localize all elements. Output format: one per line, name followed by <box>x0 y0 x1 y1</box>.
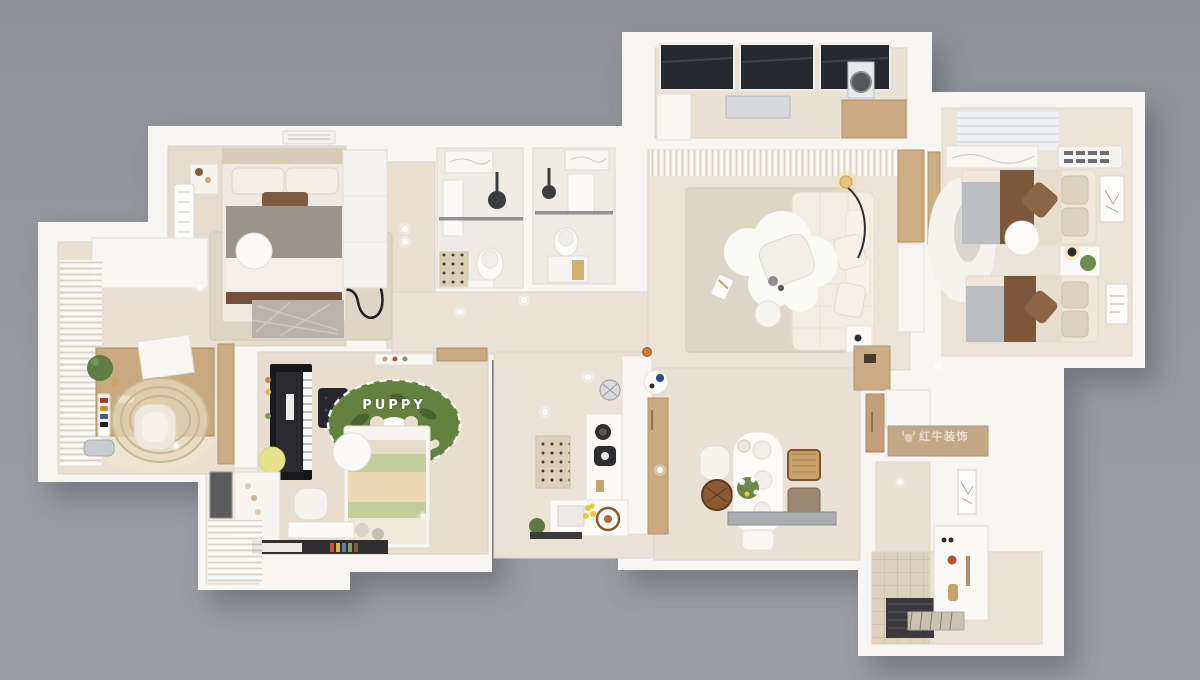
wall-art-frame <box>1100 176 1124 222</box>
brown-chair <box>788 488 820 514</box>
wood-door <box>866 394 884 452</box>
cabinet-decor <box>948 556 957 565</box>
balcony-cabinet <box>657 94 691 140</box>
laundry-wood-counter <box>842 100 906 138</box>
bowl <box>738 440 750 452</box>
pillow <box>286 168 338 194</box>
cabinet-bottle <box>948 584 958 601</box>
dotted-bath-mat <box>440 252 468 286</box>
pillow <box>1062 311 1088 337</box>
recessed-light <box>195 283 205 293</box>
dining-chair-white <box>700 446 730 480</box>
ac-grille <box>283 131 335 144</box>
recessed-light <box>171 441 181 451</box>
floor-entry-corridor <box>876 462 930 564</box>
book <box>100 422 108 427</box>
glass-roof-panel <box>660 44 734 90</box>
gold-bath-mat <box>572 260 584 280</box>
media-wood-cabinet <box>898 150 924 242</box>
dark-counter-strip <box>530 532 582 539</box>
lemon <box>583 513 589 519</box>
yellow-stool <box>259 447 285 473</box>
hook-decor <box>255 509 261 515</box>
recessed-light <box>933 361 943 371</box>
round-side-table <box>236 233 272 269</box>
pillow <box>1062 208 1088 236</box>
sofa-pillow <box>833 282 866 318</box>
desk-plant <box>87 355 113 381</box>
master-headboard <box>222 148 346 164</box>
recessed-light <box>654 464 666 476</box>
table-pedestal <box>742 530 774 550</box>
table-flowers <box>737 477 759 499</box>
study <box>60 238 234 466</box>
floorplan-render: PUPPY 红牛装饰 <box>0 0 1200 680</box>
table-decor <box>768 276 778 286</box>
kitchen-jar <box>596 480 604 492</box>
sink <box>558 506 584 526</box>
shower-glass-screen <box>535 211 613 215</box>
pillow <box>232 168 284 194</box>
plate <box>753 441 771 459</box>
kids-round-table <box>333 433 371 471</box>
wood-side-shelf <box>218 344 234 464</box>
twin-bed-2 <box>966 276 1098 342</box>
sheer-curtains <box>650 150 906 176</box>
gray-blanket <box>962 182 1004 244</box>
accent-pillow <box>262 192 308 208</box>
desk-bowl <box>110 378 118 386</box>
vanity <box>443 180 463 236</box>
recessed-light <box>582 371 594 383</box>
washing-machine-door <box>851 72 871 92</box>
hook-decor <box>245 483 251 489</box>
closet-wardrobe <box>343 150 387 288</box>
recessed-light <box>895 477 905 487</box>
metal-bin <box>84 440 114 456</box>
watermark-cabinet <box>888 426 988 456</box>
floorplan-svg <box>0 0 1200 680</box>
glass-roof-panel <box>740 44 814 90</box>
plant <box>1080 255 1096 271</box>
book <box>348 543 352 552</box>
pillow <box>1062 176 1088 204</box>
sheet-music <box>286 394 294 420</box>
table-lamp <box>1068 248 1077 257</box>
recessed-light <box>518 294 530 306</box>
hook-decor <box>251 495 257 501</box>
sheer-curtains <box>208 520 262 582</box>
piano-keys <box>303 372 312 470</box>
plush-toy <box>355 523 369 537</box>
shower-glass-screen <box>439 217 523 221</box>
recessed-light <box>418 511 428 521</box>
showerhead <box>542 185 556 199</box>
white-cabinet <box>886 390 930 428</box>
bath-door <box>468 280 494 288</box>
shower-marble-panel <box>565 150 609 170</box>
kids-desk <box>288 522 354 538</box>
lemon <box>590 504 595 509</box>
book <box>100 406 108 411</box>
stone-bench <box>728 512 836 525</box>
book <box>354 543 358 552</box>
cabinet-handle <box>966 556 970 586</box>
potted-plant <box>529 518 545 534</box>
recessed-light <box>454 306 466 318</box>
hall-round-table <box>644 370 668 394</box>
dark-glass-panel <box>210 472 232 518</box>
round-stool <box>755 301 781 327</box>
pillow <box>1062 282 1088 308</box>
recessed-light <box>399 236 411 248</box>
kids-desk-chair <box>294 488 328 520</box>
recessed-light <box>539 406 551 418</box>
recessed-light <box>399 223 411 235</box>
kids-room-door <box>437 348 487 361</box>
book <box>330 543 334 552</box>
media-white-cabinet <box>898 244 924 332</box>
round-stool <box>1005 221 1039 255</box>
book <box>336 543 340 552</box>
ac-grille <box>1058 146 1122 168</box>
book <box>342 543 346 552</box>
wood-upper-cabinet <box>854 346 890 390</box>
book <box>100 398 108 403</box>
desk-white-box <box>138 335 195 380</box>
plush-toy <box>372 528 384 540</box>
arc-floor-lamp-head <box>840 176 852 188</box>
gray-blanket <box>966 286 1006 342</box>
striped-door-mat <box>908 612 964 630</box>
drying-rack <box>726 96 790 118</box>
lemon <box>590 511 596 517</box>
shower-marble-panel <box>445 151 493 173</box>
books-white <box>262 543 302 552</box>
marble-sill <box>946 146 1038 168</box>
showerhead <box>488 191 506 209</box>
book <box>100 414 108 419</box>
table-lamp <box>855 335 862 342</box>
pendant-decor <box>643 348 652 357</box>
nightstand-decor <box>195 168 203 176</box>
kitchen-dotted-rug <box>536 436 570 488</box>
vanity <box>568 174 594 214</box>
study-cabinet <box>92 238 208 288</box>
